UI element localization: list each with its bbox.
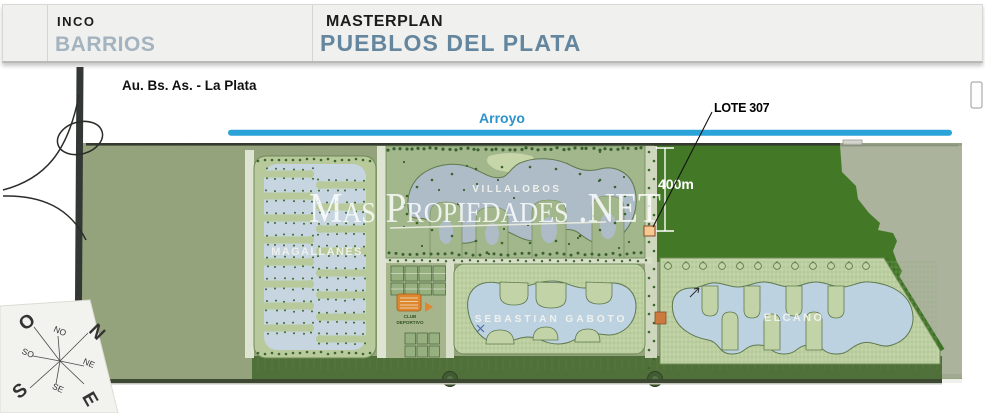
svg-text:Mas Propiedades .NET: Mas Propiedades .NET xyxy=(309,186,661,232)
svg-text:Au. Bs. As. - La Plata: Au. Bs. As. - La Plata xyxy=(122,78,257,93)
svg-text:Arroyo: Arroyo xyxy=(479,110,525,126)
svg-text:400m: 400m xyxy=(658,176,694,192)
svg-text:LOTE 307: LOTE 307 xyxy=(714,101,770,115)
